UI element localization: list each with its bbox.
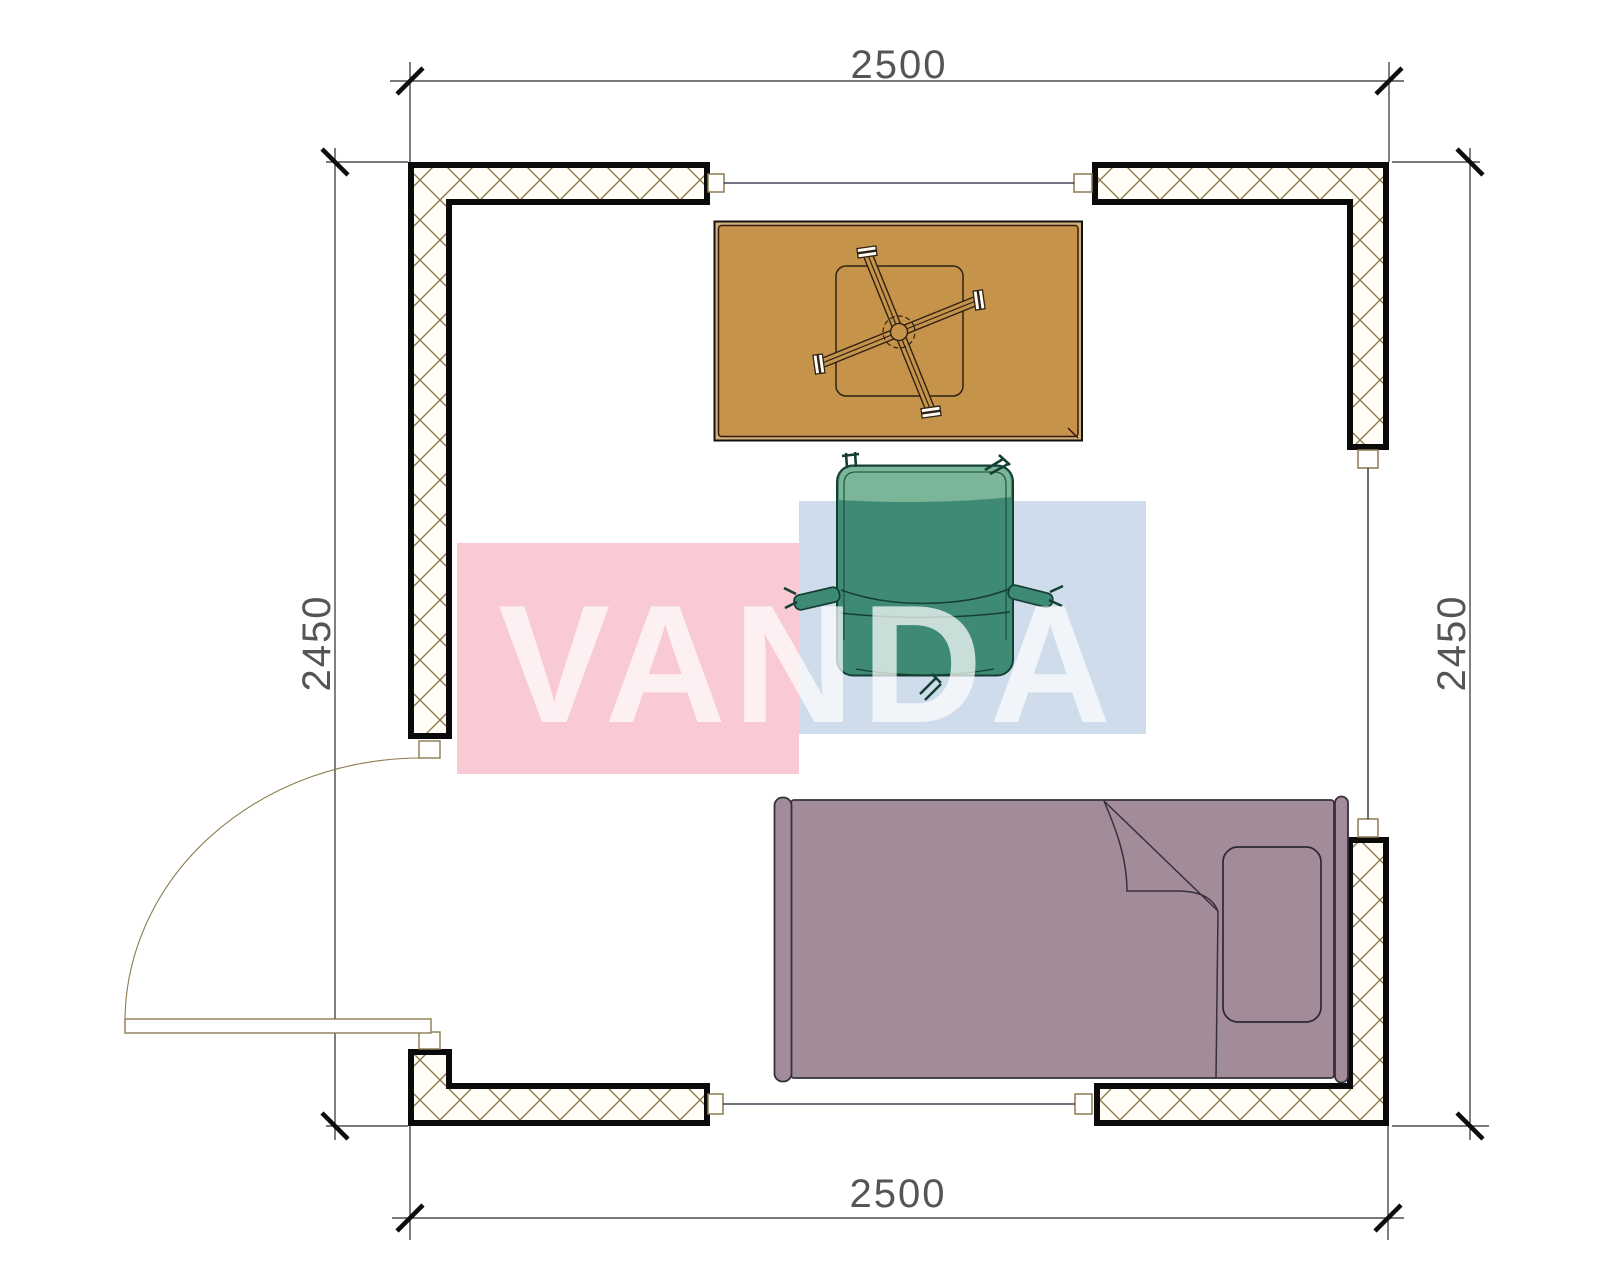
svg-text:2450: 2450 (295, 595, 339, 692)
svg-text:2450: 2450 (1430, 595, 1474, 692)
svg-text:2500: 2500 (851, 43, 948, 87)
svg-text:2500: 2500 (850, 1172, 947, 1216)
svg-text:VANDA: VANDA (498, 570, 1118, 758)
